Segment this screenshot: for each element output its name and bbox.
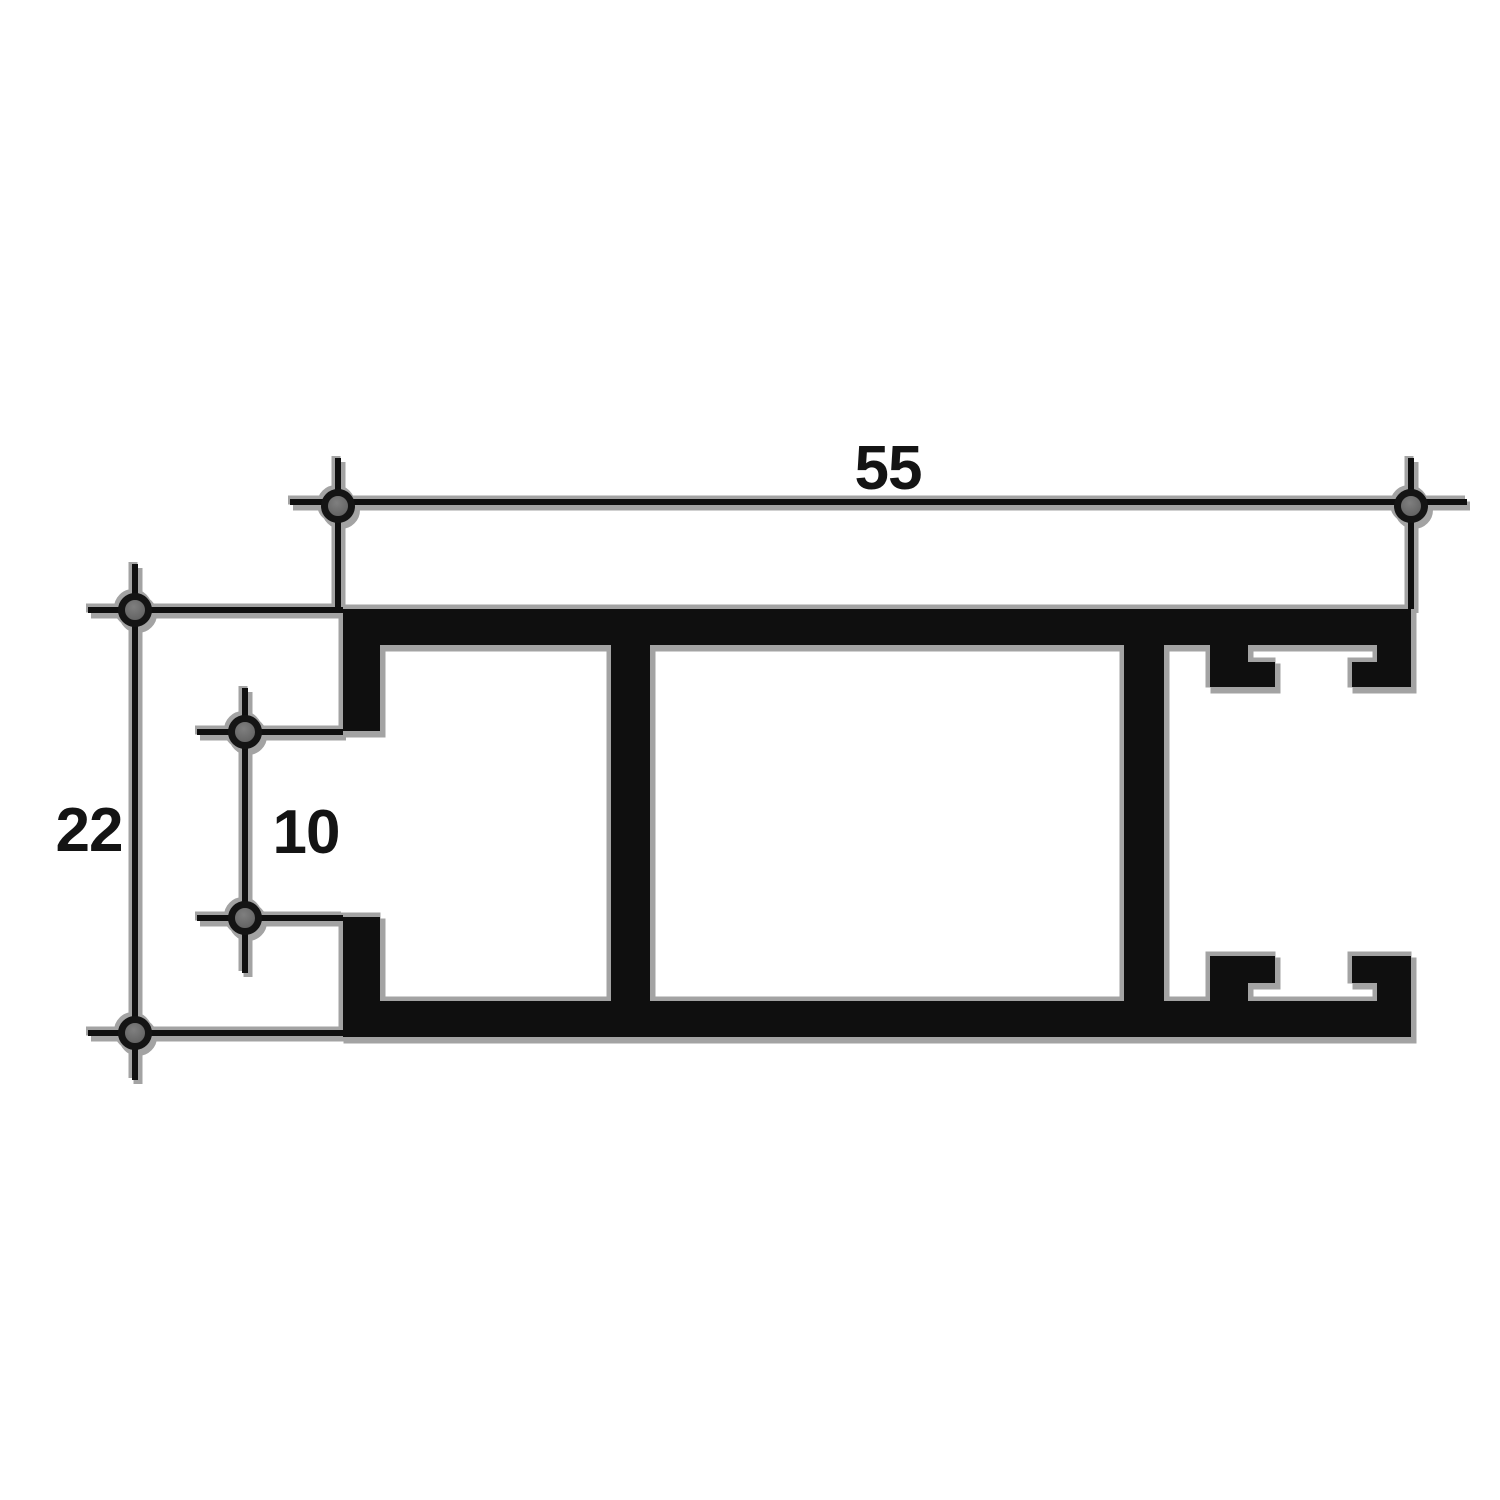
profile-drawing: 55 22 10 <box>0 0 1500 1500</box>
opening-dim-marker-top <box>232 719 259 746</box>
left-channel-bottom-lip <box>343 917 380 1037</box>
width-dimension-label: 55 <box>855 434 922 503</box>
opening-dim-marker-bottom <box>232 905 259 932</box>
height-dimension-label: 22 <box>56 796 123 865</box>
height-dim-marker-top <box>122 597 149 624</box>
bottom-slot-hook-left <box>1210 956 1275 1001</box>
height-dim-marker-bottom <box>122 1020 149 1047</box>
shadow-layer-bottom-right <box>91 462 1470 1084</box>
profile-bottom-flange <box>343 1001 1411 1037</box>
right-web <box>1124 645 1164 1001</box>
bottom-slot-hook-right <box>1352 956 1411 1001</box>
opening-dimension-label: 10 <box>273 798 340 867</box>
width-dim-marker-right <box>1398 493 1425 520</box>
left-channel-top-lip <box>343 609 380 731</box>
profile-top-flange <box>343 609 1411 645</box>
drawing-canvas: 55 22 10 <box>0 0 1500 1500</box>
center-web <box>611 645 650 1001</box>
width-dim-marker-left <box>325 493 352 520</box>
